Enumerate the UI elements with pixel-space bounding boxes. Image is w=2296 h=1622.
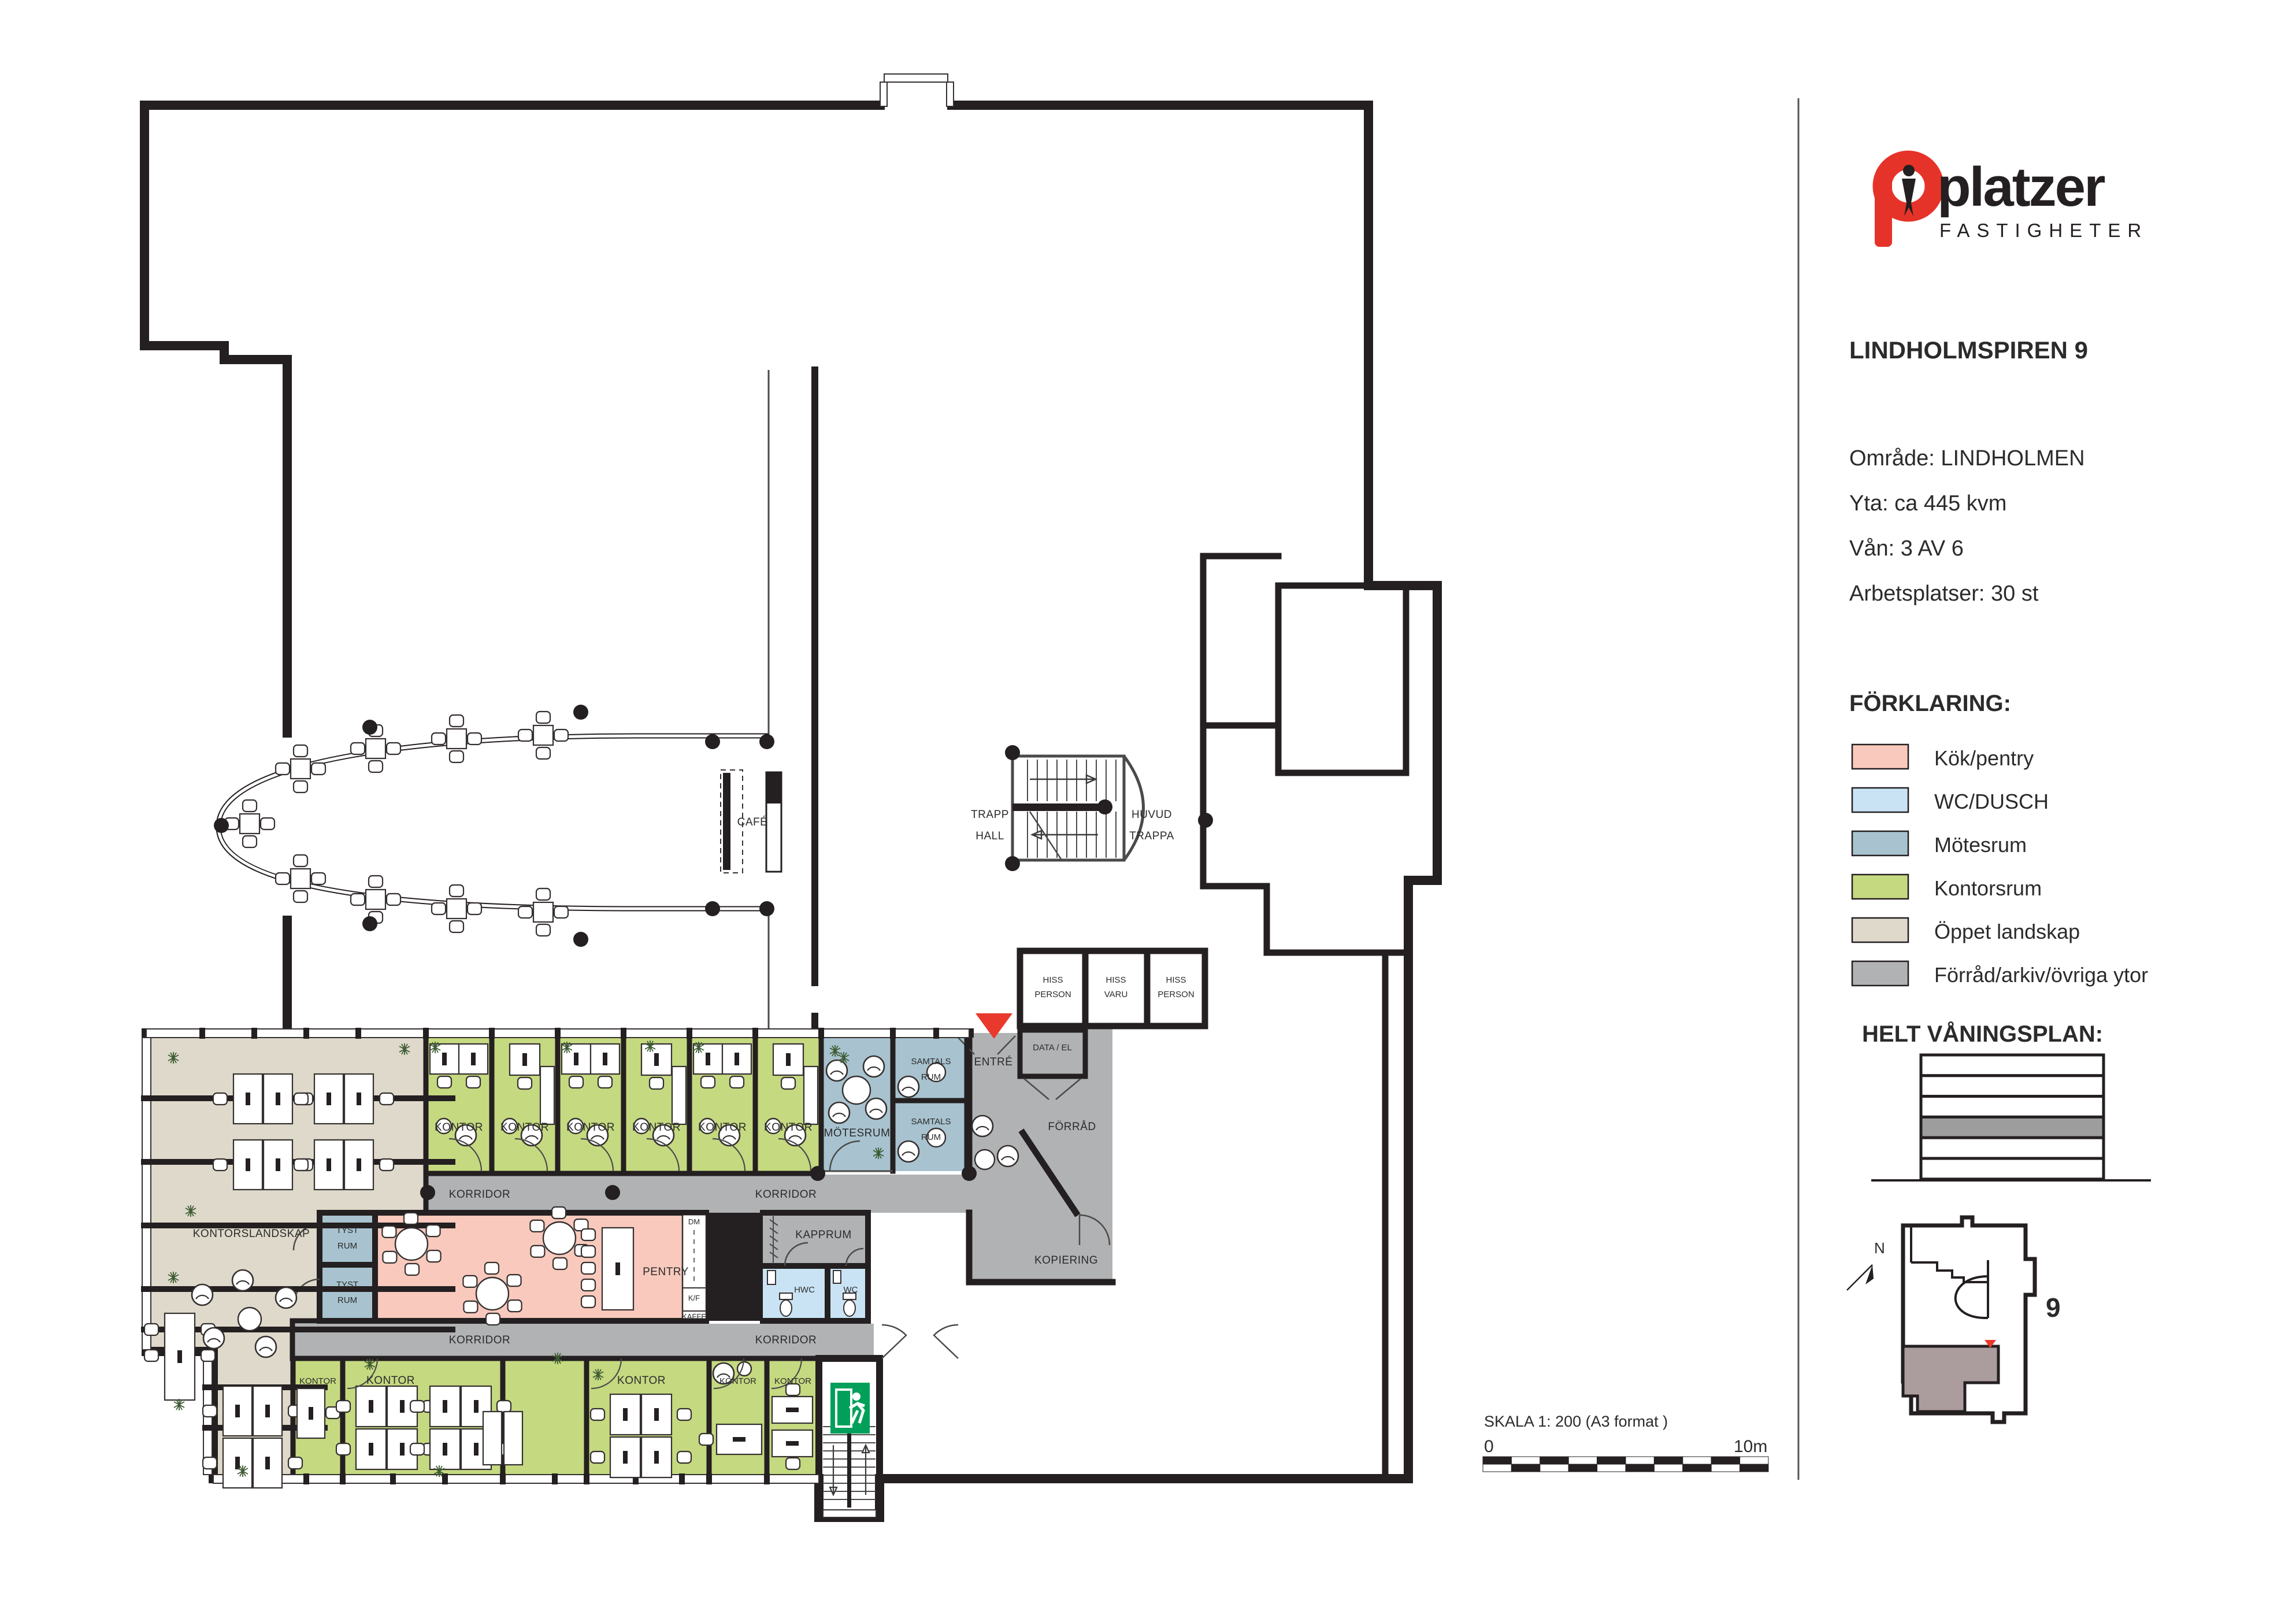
svg-text:KONTOR: KONTOR [299,1376,336,1386]
chair [450,885,463,897]
floorplan-page: CAFÉ TRAPP HALL HUVUD TRAPPA HISS PERSON… [0,0,2296,1622]
main-staircase [1012,756,1144,860]
svg-text:RUM: RUM [921,1072,941,1082]
armchair [898,1141,919,1162]
building-elevation: HELT VÅNINGSPLAN: [1862,1021,2151,1180]
svg-text:0: 0 [1484,1437,1494,1456]
column [362,916,377,931]
label-tystrum-1: TYST [336,1225,358,1235]
svg-text:RUM: RUM [337,1295,357,1305]
chair [351,743,365,754]
logo-p-stem [1875,173,1892,247]
chair [294,1159,308,1171]
toilet-icon [843,1293,856,1316]
column [362,720,377,735]
label-forrad: FÖRRÅD [1048,1121,1096,1133]
chair [677,1409,691,1420]
label-dm: DM [688,1217,700,1226]
column [1198,813,1213,828]
legend-label: Mötesrum [1934,833,2027,857]
chair [427,1250,441,1262]
svg-text:KONTOR: KONTOR [698,1121,747,1134]
label-trapp-hall: TRAPP [971,809,1009,821]
chair [581,1296,595,1308]
chair [554,906,568,918]
armchair [203,1328,224,1349]
svg-text:KONTOR: KONTOR [719,1376,756,1386]
column [214,818,229,833]
chair [261,818,275,829]
chair [485,1262,499,1274]
label-motesrum: MÖTESRUM [824,1127,891,1139]
logo-name: platzer [1937,156,2105,218]
column [1097,799,1112,814]
window-strip [142,1038,151,1350]
scale-text: SKALA 1: 200 (A3 format ) [1484,1413,1668,1430]
label-cafe: CAFÉ [737,816,768,828]
elevation-floor [1921,1138,2104,1158]
chair [677,1451,691,1463]
label-samtalsrum-1: SAMTALS [911,1057,951,1066]
cafe-table [291,759,310,779]
svg-text:KONTOR: KONTOR [566,1121,615,1134]
chair [351,894,365,905]
chair [404,1213,418,1224]
chair [311,763,325,775]
chair [380,1093,394,1105]
chair [450,715,463,727]
cafe-table [533,725,553,745]
chair [410,1401,424,1412]
chair [536,924,550,936]
legend-swatch [1852,875,1908,899]
chair [369,876,383,887]
label-korridor-2b: KORRIDOR [755,1334,817,1346]
chair [450,921,463,932]
chair [213,1093,227,1105]
chair [387,894,400,905]
area-data-el [1020,1030,1085,1076]
chair [382,1226,396,1238]
column [573,932,588,947]
elevation-floor [1921,1117,2104,1138]
svg-text:KONTOR: KONTOR [764,1121,813,1134]
label-korridor-1b: KORRIDOR [755,1188,817,1201]
chair [450,751,463,762]
armchair [863,1056,884,1077]
site-number: 9 [2046,1293,2061,1323]
site-plan: N 9 [1847,1217,2061,1422]
chair [553,1258,567,1269]
armchair [866,1098,886,1119]
info-line: Arbetsplatser: 30 st [1849,582,2039,606]
elevation-title: HELT VÅNINGSPLAN: [1862,1021,2103,1047]
chair [781,1077,795,1089]
label-wc: WC [844,1285,858,1295]
round-table [543,1222,576,1254]
chair [497,1401,511,1412]
label-samtalsrum-2: SAMTALS [911,1117,951,1127]
svg-text:TRAPPA: TRAPPA [1129,830,1174,842]
logo-person-icon [1903,165,1915,176]
chair [288,1457,302,1469]
elevation-floor [1921,1158,2104,1179]
legend-label: Kök/pentry [1934,746,2034,770]
svg-text:10m: 10m [1734,1437,1767,1456]
chair [336,1443,350,1455]
platzer-logo: platzer FASTIGHETER [1875,156,2148,247]
chair [468,903,481,914]
legend-label: Kontorsrum [1934,876,2042,900]
label-kaffe: KAFFE [682,1312,706,1321]
label-korridor-2a: KORRIDOR [449,1334,510,1346]
column [1005,745,1020,760]
chair [507,1275,521,1286]
chair [581,1279,595,1291]
legend-swatch [1852,961,1908,986]
cafe-table [291,869,310,888]
chair [294,891,307,902]
chair [276,873,290,884]
window-strip [884,74,948,82]
label-hiss-person-1: HISS [1043,975,1063,985]
chair [536,747,550,759]
label-pentry: PENTRY [643,1266,689,1278]
svg-text:HALL: HALL [975,830,1004,842]
elevation-floor [1921,1076,2104,1097]
area-tystrum-2 [320,1267,375,1319]
label-hwc: HWC [794,1285,815,1295]
round-table [843,1076,870,1104]
chair [294,855,307,866]
chair [203,1405,217,1417]
svg-text:RUM: RUM [921,1132,941,1142]
column [573,705,588,720]
chair [581,1229,595,1240]
svg-text:VARU: VARU [1104,990,1128,999]
column [759,734,774,749]
column [420,1185,435,1200]
chair [581,1246,595,1257]
round-table [395,1228,428,1260]
column [705,901,720,916]
chair [144,1324,158,1335]
elevation-floor [1921,1097,2104,1117]
cafe-table [366,890,385,909]
chair [650,1077,663,1089]
chair [468,733,481,745]
chair [518,906,532,918]
label-hiss-person-2: HISS [1166,975,1186,985]
info-line: Område: LINDHOLMEN [1849,446,2085,471]
legend-label: Förråd/arkiv/övriga ytor [1934,963,2148,987]
round-table [238,1308,261,1331]
chair [591,1409,604,1420]
chair [294,745,307,757]
column [605,1185,620,1200]
chair [463,1276,477,1287]
chair [786,1458,800,1469]
chair [466,1076,480,1088]
chair [294,781,307,793]
elevation-floor [1921,1055,2104,1076]
chair [243,836,257,847]
toilet-icon [780,1293,792,1316]
label-kapprum: KAPPRUM [795,1229,851,1241]
floorplan-canvas: CAFÉ TRAPP HALL HUVUD TRAPPA HISS PERSON… [0,0,2296,1622]
property-info: Område: LINDHOLMENYta: ca 445 kvmVån: 3 … [1849,446,2085,606]
chair [518,729,532,741]
armchair [972,1116,993,1136]
svg-text:KONTOR: KONTOR [500,1121,549,1134]
chair [276,763,290,775]
chair [531,1246,544,1257]
chair [426,1225,440,1236]
chair [530,1220,544,1232]
chair [701,1076,715,1088]
legend-label: Öppet landskap [1934,920,2080,943]
chair [486,1313,500,1325]
round-table [975,1150,995,1169]
chair [336,1401,350,1412]
armchair [898,1076,919,1097]
chair [405,1264,419,1275]
chair [311,873,325,884]
svg-text:PERSON: PERSON [1158,990,1194,999]
column [810,1166,825,1181]
area-tystrum-1 [320,1213,375,1265]
chair [432,733,446,745]
chair [591,1451,604,1463]
exit-sign [830,1383,870,1434]
chair [437,1076,451,1088]
column [1005,856,1020,871]
svg-text:KONTOR: KONTOR [632,1121,681,1134]
chair [598,1076,612,1088]
svg-text:PERSON: PERSON [1034,990,1071,999]
column [705,734,720,749]
chair [463,1301,477,1313]
sidebar: platzer FASTIGHETER LINDHOLMSPIREN 9 Omr… [1847,156,2151,1422]
page-title: LINDHOLMSPIREN 9 [1849,336,2088,364]
chair [144,1350,158,1361]
label-huvud-trappa: HUVUD [1132,809,1172,821]
chair [581,1262,595,1274]
chair [201,1350,215,1361]
legend-swatch [1852,918,1908,942]
label-entre: ENTRÉ [974,1056,1013,1068]
chair [730,1076,744,1088]
elevator-block [1020,951,1205,1026]
column [962,1166,977,1181]
label-kf: K/F [688,1294,700,1302]
window-strip [823,1510,876,1517]
armchair [255,1336,276,1357]
chair [699,1434,713,1445]
armchair [232,1270,253,1291]
label-data-el: DATA / EL [1033,1043,1072,1053]
cafe-table [447,899,466,919]
chair [383,1251,396,1263]
column [759,901,774,916]
legend: Kök/pentryWC/DUSCHMötesrumKontorsrumÖppe… [1852,745,2148,987]
cafe-table [447,729,466,749]
cafe-table [240,814,259,834]
legend-swatch [1852,831,1908,856]
logo-subtitle: FASTIGHETER [1939,220,2148,241]
chair [213,1159,227,1171]
chair [380,1159,394,1171]
legend-swatch [1852,788,1908,812]
scale-bar: SKALA 1: 200 (A3 format ) 0 10m [1483,1413,1768,1472]
svg-text:RUM: RUM [337,1241,357,1251]
label-kopiering: KOPIERING [1034,1254,1098,1267]
service-core [706,1213,763,1321]
svg-text:KONTOR: KONTOR [435,1121,483,1134]
chair [518,1077,532,1089]
chair [243,800,257,812]
legend-label: WC/DUSCH [1934,790,2049,813]
label-korridor-1a: KORRIDOR [449,1188,510,1201]
chair [410,1443,424,1455]
round-table [476,1277,509,1310]
chair [552,1207,566,1219]
cafe-table [366,739,385,758]
legend-title: FÖRKLARING: [1849,690,2011,716]
label-hiss-varu: HISS [1106,975,1126,985]
info-line: Yta: ca 445 kvm [1849,491,2006,516]
label-kontorslandskap: KONTORSLANDSKAP [193,1228,310,1240]
chair [432,903,446,914]
chair [294,1093,308,1105]
legend-swatch [1852,745,1908,769]
chair [569,1076,583,1088]
armchair [997,1146,1018,1166]
cafe-table [533,902,553,922]
armchair [276,1287,296,1308]
info-line: Vån: 3 AV 6 [1849,536,1964,561]
svg-text:KONTOR: KONTOR [774,1376,811,1386]
armchair [829,1102,850,1123]
chair [536,712,550,723]
chair [203,1457,217,1469]
north-label: N [1874,1239,1885,1257]
chair [387,743,400,754]
chair [369,761,383,772]
svg-text:KONTOR: KONTOR [617,1375,666,1387]
armchair [192,1284,213,1305]
label-tystrum-2: TYST [336,1280,358,1290]
svg-text:KONTOR: KONTOR [366,1375,415,1387]
chair [536,888,550,900]
chair [508,1300,522,1312]
chair [554,729,568,741]
